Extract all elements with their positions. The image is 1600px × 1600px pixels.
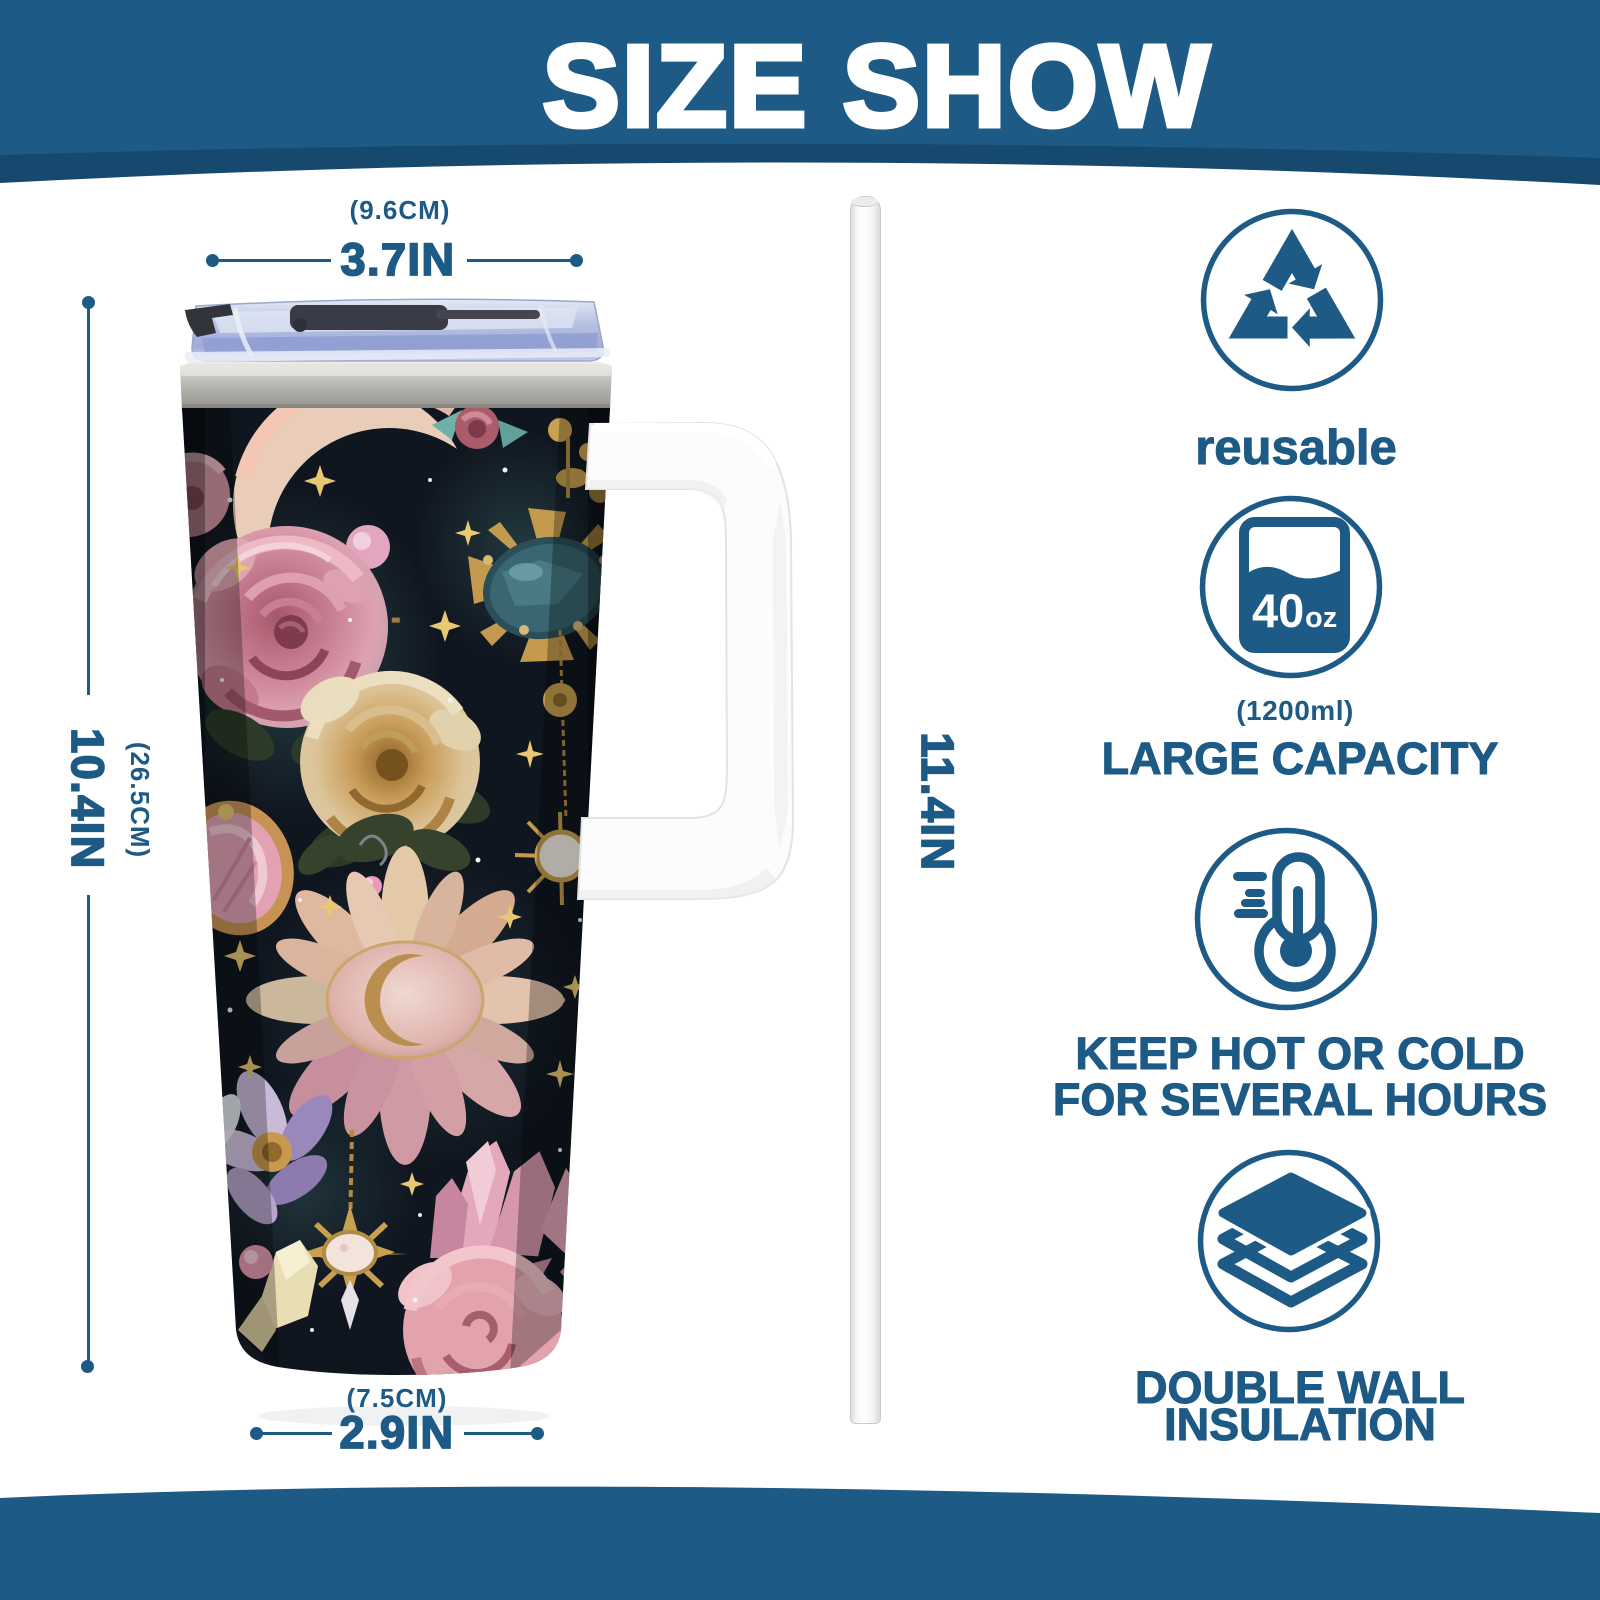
svg-text:oz: oz (1305, 602, 1337, 634)
svg-text:40: 40 (1252, 584, 1304, 637)
